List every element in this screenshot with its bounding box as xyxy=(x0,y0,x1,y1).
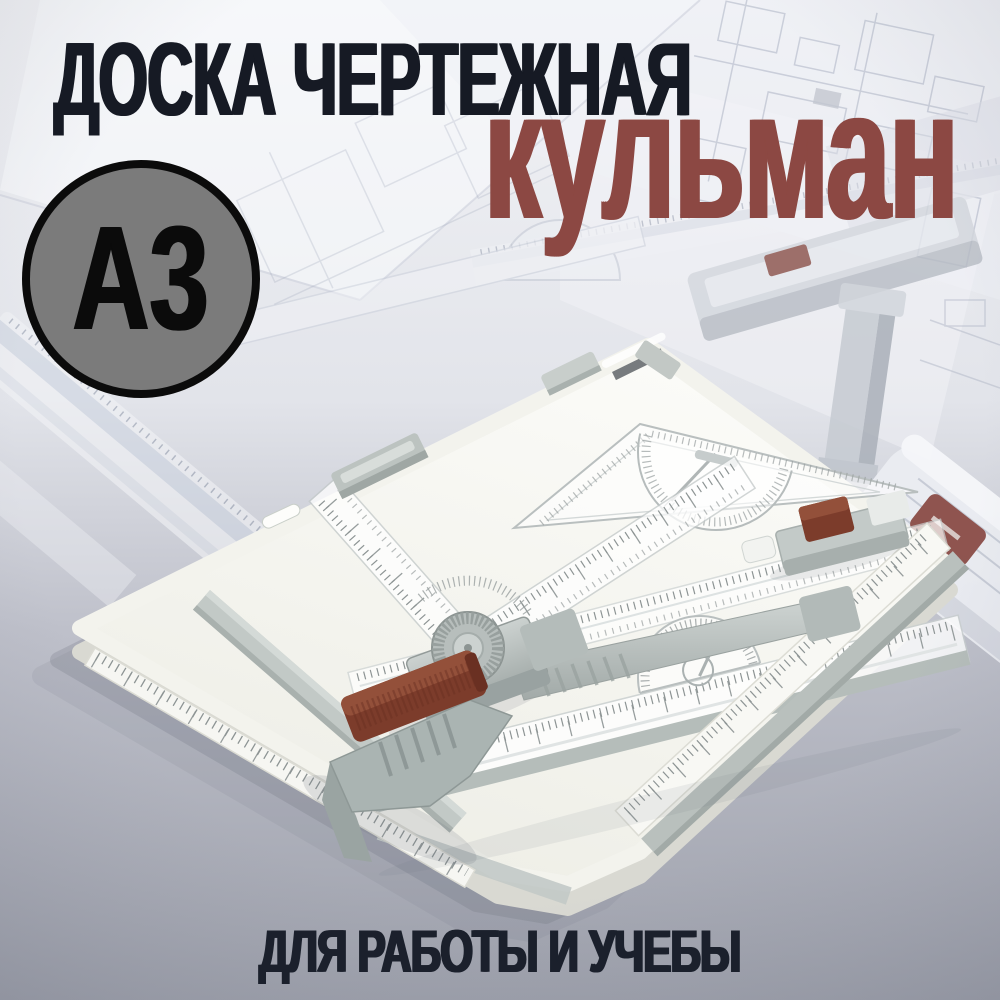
size-badge-label: A3 xyxy=(73,205,209,353)
size-badge: A3 xyxy=(22,160,260,398)
product-subtitle: кульман xyxy=(485,62,958,248)
bottom-caption: ДЛЯ РАБОТЫ И УЧЕБЫ xyxy=(0,922,1000,982)
bottom-caption-text: ДЛЯ РАБОТЫ И УЧЕБЫ xyxy=(259,922,740,982)
product-card: A3 ДОСКА ЧЕРТЕЖНАЯ кульман ДЛЯ РАБОТЫ И … xyxy=(0,0,1000,1000)
